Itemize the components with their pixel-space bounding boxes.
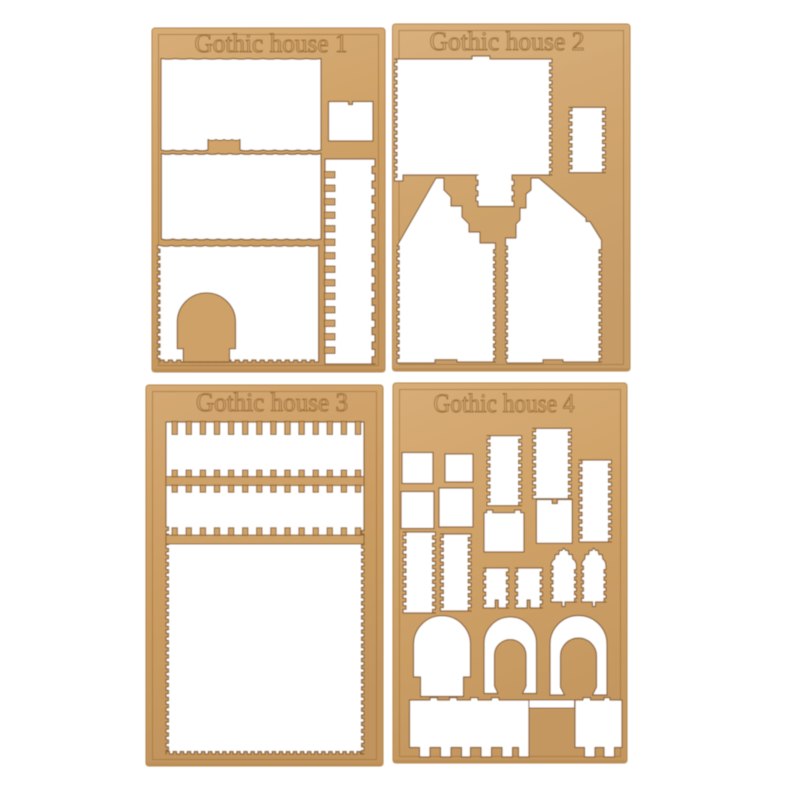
svg-text:Gothic house 3: Gothic house 3 <box>196 388 348 417</box>
svg-text:Gothic house 4: Gothic house 4 <box>434 389 575 418</box>
svg-text:Gothic house 1: Gothic house 1 <box>195 29 348 58</box>
svg-text:Gothic house 2: Gothic house 2 <box>430 27 585 56</box>
